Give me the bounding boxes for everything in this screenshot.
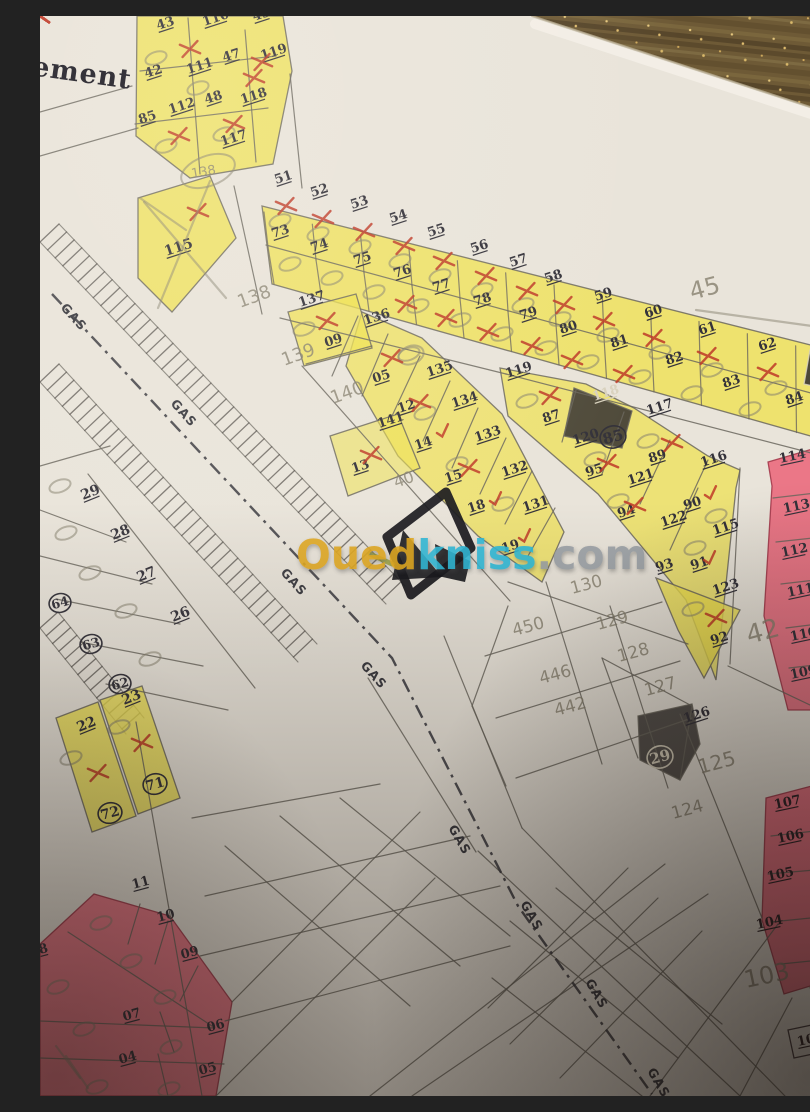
plan-generated-content: 4311045119421114711885112481171155152535…: [40, 16, 810, 1096]
shadow-overlay-bottom-left: [40, 16, 810, 1096]
photo-of-site-plan: 4311045119421114711885112481171155152535…: [40, 16, 810, 1096]
site-plan: 4311045119421114711885112481171155152535…: [40, 16, 810, 1096]
